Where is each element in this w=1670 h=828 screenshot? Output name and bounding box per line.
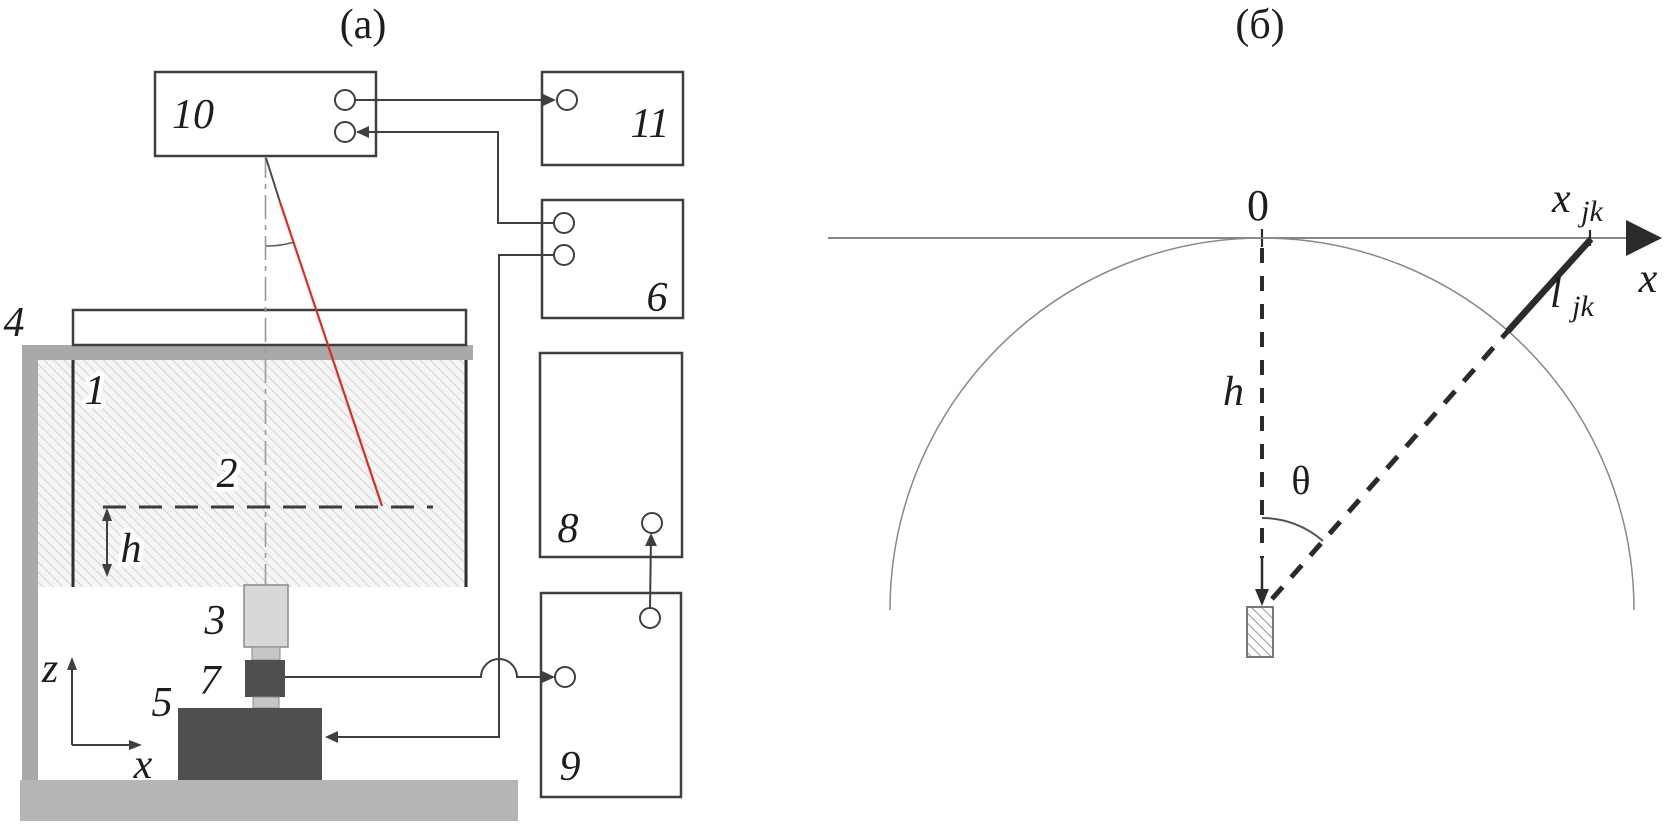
box-8-terminal (642, 513, 662, 533)
label-8: 8 (558, 506, 579, 552)
beam-angle-arc (266, 242, 294, 246)
panel-b-caption: (б) (1235, 2, 1284, 48)
b-theta-arc (1262, 518, 1323, 541)
b-label-ljk: l jk (1550, 271, 1595, 323)
hydrophone-3 (244, 585, 288, 647)
b-label-ljk-main: l (1550, 271, 1562, 317)
axis-z-arrow (67, 657, 77, 670)
label-z-axis: z (41, 646, 58, 692)
box-11-terminal (557, 90, 577, 110)
panel-a-caption: (a) (340, 2, 387, 48)
box-6-terminal-1 (554, 213, 574, 233)
figure-svg: (a) 10 11 6 8 9 (0, 0, 1670, 828)
wire-6-to-10 (357, 132, 554, 223)
frame-top-rail (22, 345, 473, 360)
box-9-terminal-left (555, 667, 575, 687)
b-label-ljk-sub: jk (1568, 290, 1594, 323)
coupler-upper (252, 647, 280, 660)
frame-post (22, 345, 38, 781)
b-label-h: h (1223, 369, 1244, 415)
label-3: 3 (204, 598, 226, 644)
box-9-terminal-top (640, 608, 660, 628)
label-7: 7 (200, 658, 223, 704)
coupler-lower (253, 697, 279, 708)
b-x-axis-arrowhead (1626, 220, 1662, 256)
b-label-origin: 0 (1247, 181, 1269, 230)
beam-segment-dark (266, 158, 280, 202)
preamp-7 (245, 660, 285, 697)
b-label-xjk: x jk (1551, 176, 1603, 228)
label-4: 4 (4, 300, 25, 346)
box-10-terminal-2 (335, 122, 355, 142)
wire-6-to-5-arrow (325, 731, 338, 743)
base-platform (20, 780, 518, 821)
label-h-panel-a: h (121, 526, 142, 572)
b-label-xjk-main: x (1551, 176, 1571, 222)
b-transducer (1247, 607, 1273, 657)
wire-9-to-8 (650, 536, 651, 608)
b-h-arrowhead (1255, 589, 1269, 606)
b-label-xjk-sub: jk (1577, 195, 1603, 228)
label-10: 10 (172, 92, 214, 138)
box-10-terminal-1 (335, 90, 355, 110)
label-x-axis-a: x (133, 742, 153, 788)
label-1: 1 (85, 368, 106, 414)
label-6: 6 (647, 275, 668, 321)
figure-canvas: (a) 10 11 6 8 9 (0, 0, 1670, 828)
tank-lid (73, 310, 466, 345)
label-11: 11 (631, 101, 670, 147)
box-6-terminal-2 (554, 245, 574, 265)
b-label-x-axis: x (1638, 256, 1658, 302)
label-9: 9 (560, 744, 581, 790)
positioner-5 (178, 708, 322, 780)
wire-7-to-9 (285, 659, 543, 677)
label-2: 2 (217, 451, 238, 497)
b-label-theta: θ (1291, 458, 1310, 503)
label-5: 5 (152, 680, 173, 726)
